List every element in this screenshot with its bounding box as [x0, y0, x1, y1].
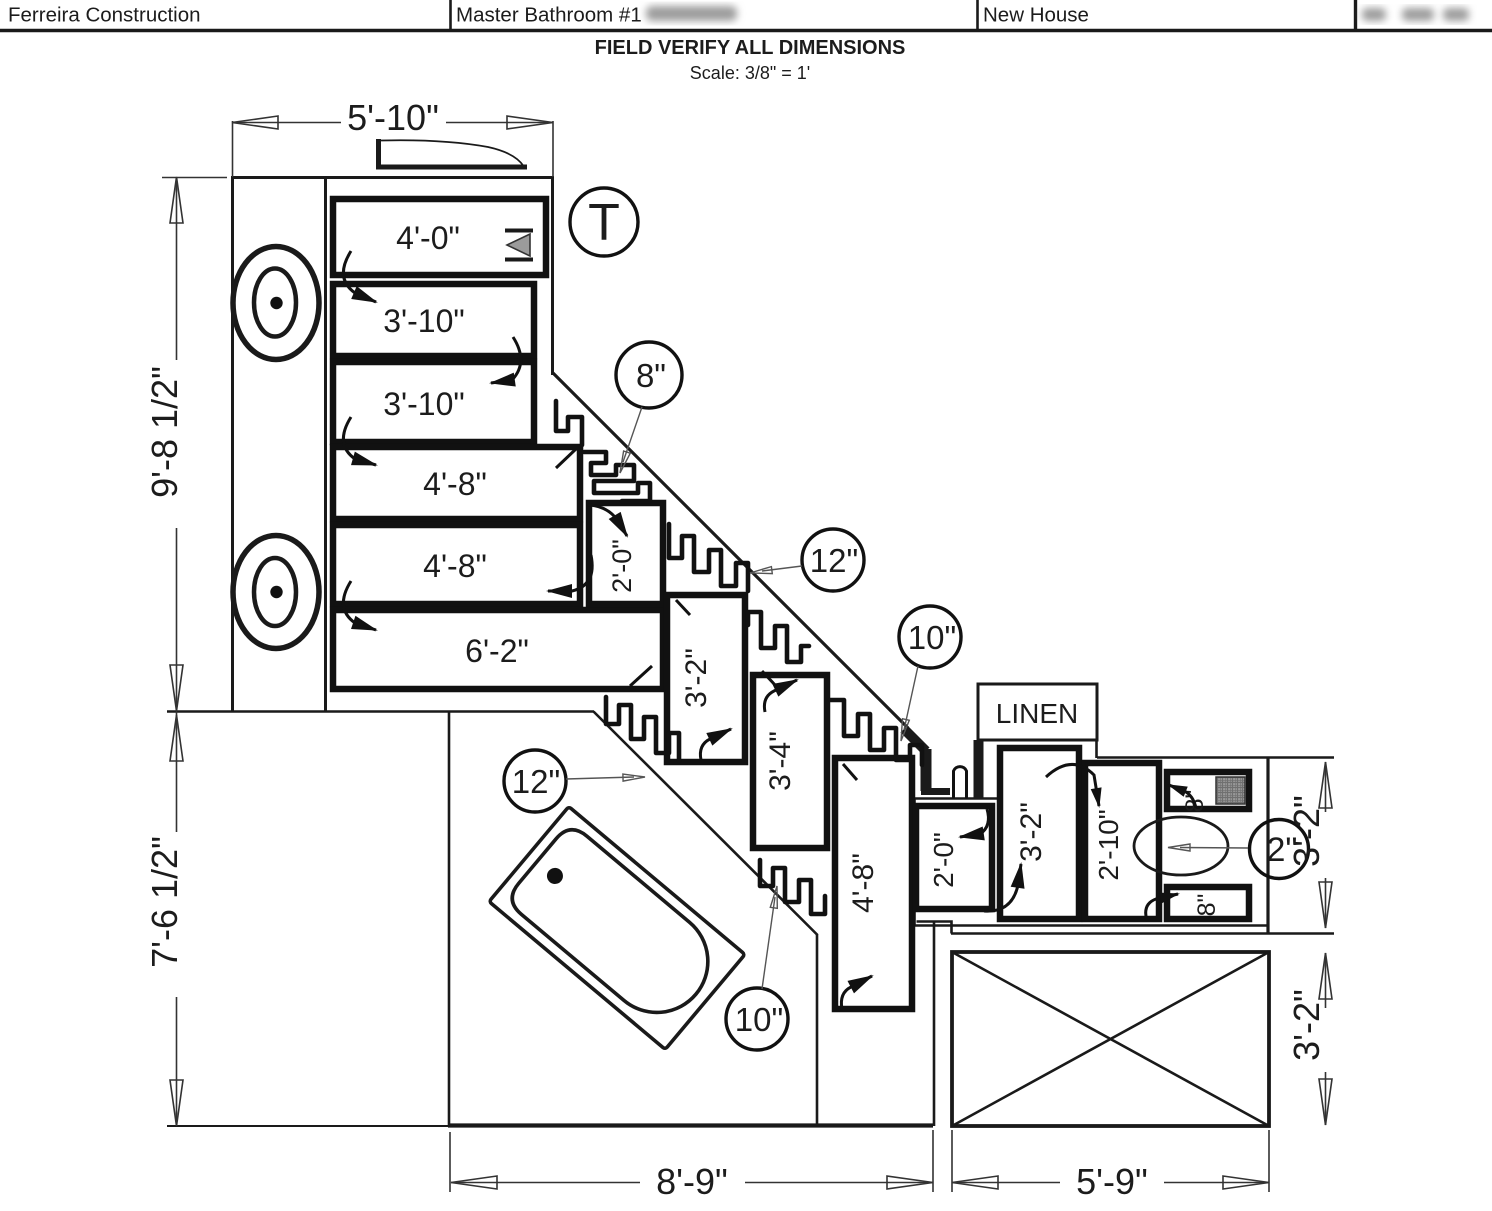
svg-text:3'-2": 3'-2" — [1015, 802, 1048, 862]
svg-text:Ferreira Construction: Ferreira Construction — [8, 4, 201, 27]
svg-text:T: T — [588, 194, 620, 252]
svg-text:8'-9": 8'-9" — [656, 1161, 728, 1202]
svg-text:2'-0": 2'-0" — [928, 832, 959, 888]
svg-text:5'-9": 5'-9" — [1076, 1161, 1148, 1202]
svg-text:6'-2": 6'-2" — [465, 633, 529, 669]
svg-text:4'-8": 4'-8" — [423, 548, 487, 584]
svg-text:New House: New House — [983, 4, 1089, 27]
svg-text:Scale: 3/8" = 1': Scale: 3/8" = 1' — [690, 63, 810, 83]
svg-text:3'-2": 3'-2" — [1286, 989, 1327, 1061]
svg-text:9'-8 1/2": 9'-8 1/2" — [144, 366, 185, 498]
svg-text:3'-2": 3'-2" — [1286, 795, 1327, 867]
svg-text:2'-0": 2'-0" — [607, 539, 637, 593]
svg-text:8": 8" — [1193, 894, 1221, 917]
svg-text:10": 10" — [908, 619, 956, 656]
svg-text:4'-8": 4'-8" — [847, 853, 880, 913]
svg-text:4'-8": 4'-8" — [423, 466, 487, 502]
svg-text:12": 12" — [512, 763, 560, 800]
svg-text:5'-10": 5'-10" — [347, 97, 439, 138]
svg-text:3'-4": 3'-4" — [764, 731, 797, 791]
svg-text:12": 12" — [810, 542, 858, 579]
svg-text:4'-0": 4'-0" — [396, 220, 460, 256]
svg-text:Master Bathroom #1: Master Bathroom #1 — [456, 4, 642, 27]
svg-text:8": 8" — [636, 357, 666, 394]
svg-text:LINEN: LINEN — [996, 698, 1078, 729]
svg-text:10": 10" — [735, 1001, 783, 1038]
svg-text:3'-10": 3'-10" — [383, 303, 465, 339]
svg-text:7'-6 1/2": 7'-6 1/2" — [144, 836, 185, 968]
svg-text:3'-10": 3'-10" — [383, 386, 465, 422]
svg-text:FIELD VERIFY ALL DIMENSIONS: FIELD VERIFY ALL DIMENSIONS — [595, 37, 906, 59]
svg-text:2'-10": 2'-10" — [1093, 809, 1124, 880]
svg-text:3'-2": 3'-2" — [680, 648, 713, 708]
